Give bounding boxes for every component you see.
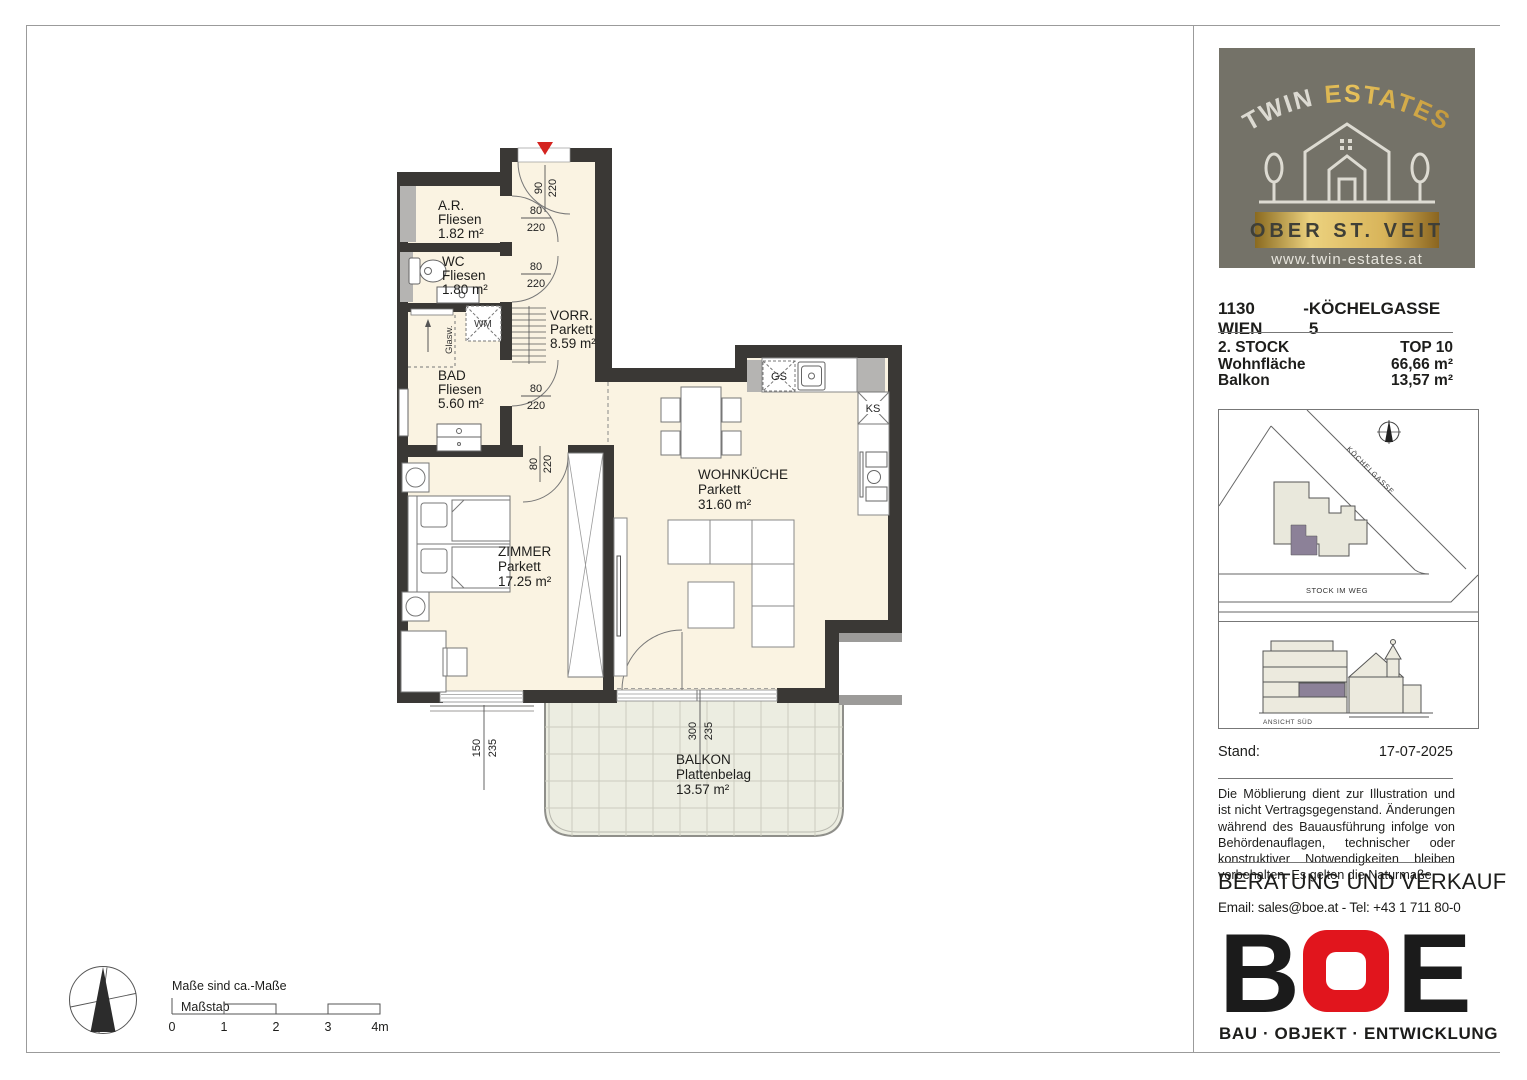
elevation-view: ANSICHT SÜD [1218, 621, 1479, 729]
svg-text:300: 300 [687, 722, 699, 740]
svg-text:Plattenbelag: Plattenbelag [676, 767, 751, 782]
svg-text:235: 235 [487, 739, 499, 757]
svg-text:0: 0 [169, 1020, 176, 1034]
svg-text:VORR.: VORR. [550, 308, 593, 323]
detail-label: Balkon [1218, 373, 1270, 390]
svg-text:80: 80 [530, 383, 542, 395]
address-city: 1130 WIEN [1218, 299, 1303, 339]
elevation-label: ANSICHT SÜD [1263, 718, 1312, 726]
address-divider [1218, 332, 1453, 333]
svg-text:80: 80 [530, 205, 542, 217]
floorplan-sheet: { "plan": { "rooms": { "ar": {"name":"A.… [0, 0, 1527, 1080]
svg-text:Parkett: Parkett [698, 482, 741, 497]
drawing-sheet: Glasw. WM [26, 25, 1500, 1053]
svg-text:235: 235 [703, 722, 715, 740]
svg-text:80: 80 [530, 261, 542, 273]
building-footprint [1274, 482, 1367, 556]
unit-details: 2. STOCK TOP 10 Wohnfläche 66,66 m² Balk… [1218, 340, 1453, 390]
coffee-table-icon [688, 582, 734, 628]
svg-text:2: 2 [273, 1020, 280, 1034]
brand-logo: TWINESTATES OBER ST. VEIT [1219, 48, 1475, 268]
svg-text:80: 80 [528, 458, 540, 470]
svg-text:4m: 4m [371, 1020, 388, 1034]
detail-label: Wohnfläche [1218, 357, 1306, 374]
info-panel: TWINESTATES OBER ST. VEIT [1193, 26, 1501, 1052]
svg-text:Parkett: Parkett [498, 559, 541, 574]
svg-text:13.57 m²: 13.57 m² [676, 782, 730, 797]
bad-vanity-icon [437, 424, 481, 451]
detail-value: TOP 10 [1400, 340, 1453, 357]
svg-text:Fliesen: Fliesen [442, 268, 486, 283]
detail-row-balcony: Balkon 13,57 m² [1218, 373, 1453, 390]
svg-text:WOHNKÜCHE: WOHNKÜCHE [698, 467, 788, 482]
wardrobe-icon [568, 453, 603, 677]
svg-text:3: 3 [325, 1020, 332, 1034]
tv-board-icon [614, 518, 627, 676]
bed-icon [408, 496, 510, 592]
boe-letter-e: E [1397, 924, 1472, 1018]
svg-text:150: 150 [471, 739, 483, 757]
website-label: www.twin-estates.at [1270, 251, 1423, 268]
detail-value: 13,57 m² [1391, 373, 1453, 390]
svg-text:BAD: BAD [438, 368, 466, 383]
svg-text:5.60 m²: 5.60 m² [438, 396, 484, 411]
floor-plan: Glasw. WM [27, 26, 1193, 1052]
svg-text:1.80 m²: 1.80 m² [442, 282, 488, 297]
street-label-horizontal: STOCK IM WEG [1306, 586, 1368, 595]
stand-row: Stand: 17-07-2025 [1218, 744, 1453, 760]
toilet-icon [409, 258, 446, 284]
stand-label: Stand: [1218, 744, 1260, 760]
svg-text:8.59 m²: 8.59 m² [550, 336, 596, 351]
street-label-diagonal: KÖCHELGASSE [1345, 445, 1396, 496]
detail-value: 66,66 m² [1391, 357, 1453, 374]
svg-text:ZIMMER: ZIMMER [498, 544, 551, 559]
svg-text:1.82 m²: 1.82 m² [438, 226, 484, 241]
detail-label: 2. STOCK [1218, 340, 1289, 357]
detail-row-floor: 2. STOCK TOP 10 [1218, 340, 1453, 357]
svg-text:90: 90 [533, 182, 545, 194]
svg-text:220: 220 [542, 455, 554, 473]
zimmer-window [430, 691, 534, 711]
dim-window-zimmer: 150 235 [471, 705, 499, 790]
svg-text:Fliesen: Fliesen [438, 382, 482, 397]
svg-text:A.R.: A.R. [438, 198, 464, 213]
svg-text:Parkett: Parkett [550, 322, 593, 337]
address-street: KÖCHELGASSE 5 [1309, 299, 1453, 339]
divider [1218, 862, 1453, 863]
house-trees-icon [1259, 124, 1435, 202]
svg-text:WC: WC [442, 254, 465, 269]
site-map: KÖCHELGASSE STOCK IM WEG [1218, 409, 1479, 622]
contact-line: Email: sales@boe.at - Tel: +43 1 711 80-… [1218, 900, 1455, 915]
scale-label: Maßstab [181, 1000, 230, 1014]
svg-text:220: 220 [527, 222, 545, 234]
boe-tagline: BAU · OBJEKT · ENTWICKLUNG [1219, 1024, 1475, 1044]
detail-row-area: Wohnfläche 66,66 m² [1218, 357, 1453, 374]
wm-label: WM [474, 319, 492, 330]
ks-label: KS [866, 403, 881, 415]
contact-heading: BERATUNG UND VERKAUF [1218, 869, 1455, 895]
svg-text:220: 220 [527, 278, 545, 290]
gs-label: GS [771, 371, 787, 383]
stand-date: 17-07-2025 [1379, 744, 1453, 760]
svg-text:1: 1 [221, 1020, 228, 1034]
svg-text:BALKON: BALKON [676, 752, 731, 767]
glass-wall-label: Glasw. [444, 325, 455, 354]
address-row: 1130 WIEN - KÖCHELGASSE 5 [1218, 299, 1453, 339]
dining-table-icon [661, 387, 741, 458]
svg-text:31.60 m²: 31.60 m² [698, 497, 752, 512]
elevation-buildings [1259, 640, 1433, 718]
divider [1218, 778, 1453, 779]
svg-text:17.25 m²: 17.25 m² [498, 574, 552, 589]
room-label-vorr: VORR. Parkett 8.59 m² [550, 308, 596, 351]
location-label: OBER ST. VEIT [1250, 220, 1444, 242]
svg-text:220: 220 [547, 179, 559, 197]
north-compass-icon [70, 967, 137, 1034]
boe-letter-b: B [1219, 924, 1300, 1018]
sink-icon [798, 362, 825, 390]
boe-logo: B E BAU · OBJEKT · ENTWICKLUNG [1219, 924, 1475, 1044]
brand-name: TWINESTATES [1238, 80, 1455, 137]
map-compass-icon [1377, 420, 1401, 444]
svg-text:220: 220 [527, 400, 545, 412]
svg-text:Fliesen: Fliesen [438, 212, 482, 227]
approx-note: Maße sind ca.-Maße [172, 979, 287, 993]
radiator-icon [399, 389, 408, 436]
boe-letter-o-shape [1303, 930, 1389, 1012]
scale-bar: Maße sind ca.-Maße Maßstab 0 1 2 3 4m [169, 979, 389, 1034]
